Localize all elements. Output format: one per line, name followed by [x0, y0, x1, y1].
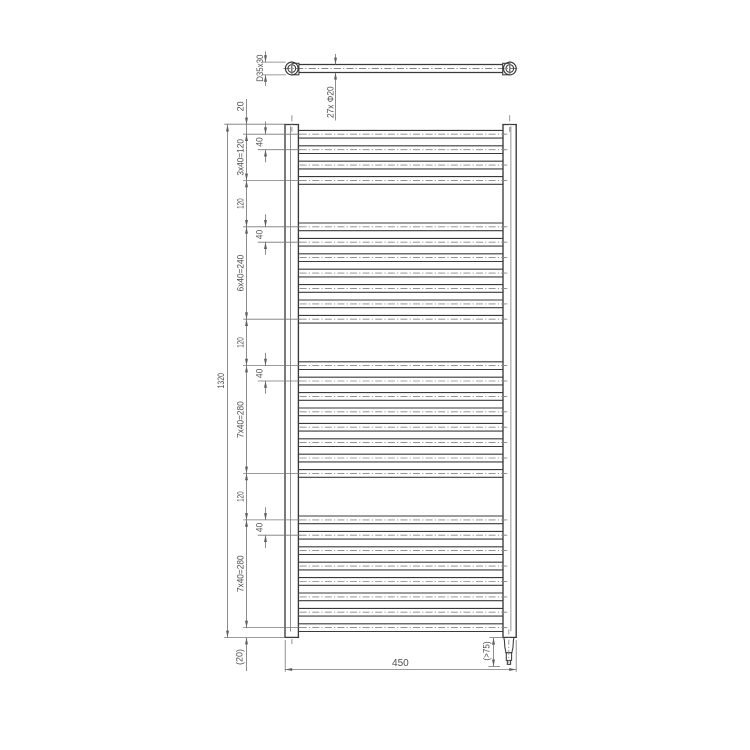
- svg-text:3x40=120: 3x40=120: [235, 139, 245, 176]
- svg-text:20: 20: [235, 101, 245, 111]
- svg-text:40: 40: [254, 523, 264, 533]
- svg-text:450: 450: [392, 658, 409, 669]
- svg-text:7x40=280: 7x40=280: [235, 555, 245, 592]
- svg-text:120: 120: [235, 198, 245, 209]
- svg-text:40: 40: [254, 137, 264, 147]
- svg-text:40: 40: [254, 369, 264, 379]
- svg-text:(>75): (>75): [482, 641, 492, 660]
- svg-text:7x40=280: 7x40=280: [235, 401, 245, 438]
- svg-text:D35x30: D35x30: [255, 55, 265, 82]
- svg-text:(20): (20): [235, 649, 245, 665]
- svg-text:27x Φ20: 27x Φ20: [325, 86, 335, 118]
- svg-text:120: 120: [235, 337, 245, 348]
- svg-text:120: 120: [235, 491, 245, 502]
- svg-text:40: 40: [254, 230, 264, 240]
- svg-text:6x40=240: 6x40=240: [235, 255, 245, 292]
- svg-text:1320: 1320: [216, 373, 226, 389]
